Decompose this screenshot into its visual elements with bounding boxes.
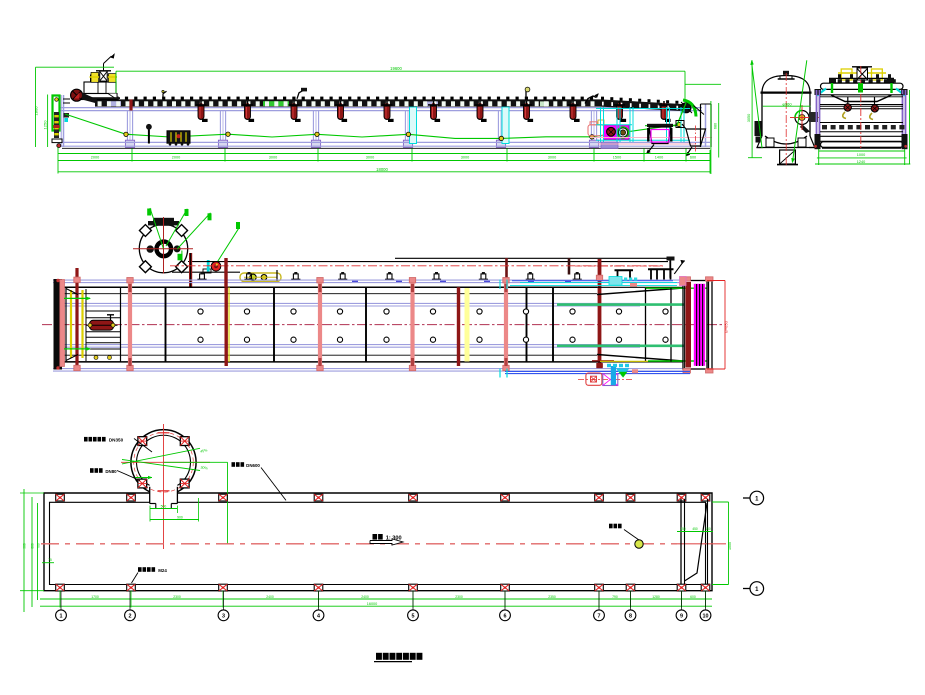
svg-text:φ960: φ960 xyxy=(782,102,792,107)
svg-text:600: 600 xyxy=(690,595,696,599)
svg-text:1800: 1800 xyxy=(34,106,39,116)
svg-text:9: 9 xyxy=(680,614,683,620)
svg-text:DN600: DN600 xyxy=(246,463,260,468)
svg-text:2300: 2300 xyxy=(455,595,463,599)
svg-text:1280: 1280 xyxy=(652,595,660,599)
svg-text:2000: 2000 xyxy=(91,155,99,159)
svg-text:3000: 3000 xyxy=(269,155,277,159)
svg-text:1500: 1500 xyxy=(613,155,621,159)
svg-text:4: 4 xyxy=(317,614,320,620)
svg-text:150: 150 xyxy=(680,527,686,531)
svg-text:10: 10 xyxy=(703,614,709,620)
svg-text:2300: 2300 xyxy=(173,595,181,599)
svg-text:700: 700 xyxy=(37,543,41,549)
svg-text:DN80: DN80 xyxy=(105,469,117,474)
svg-text:7: 7 xyxy=(598,614,601,620)
svg-text:1000: 1000 xyxy=(857,153,865,157)
svg-text:75: 75 xyxy=(48,558,52,562)
svg-text:2400: 2400 xyxy=(266,595,274,599)
svg-text:1240: 1240 xyxy=(857,160,865,164)
svg-text:2000: 2000 xyxy=(172,155,180,159)
svg-text:790: 790 xyxy=(612,595,618,599)
svg-text:B=650: B=650 xyxy=(724,320,729,332)
svg-text:DN350: DN350 xyxy=(109,438,124,443)
svg-text:1000: 1000 xyxy=(728,542,732,550)
svg-text:1400: 1400 xyxy=(655,155,663,159)
svg-text:5: 5 xyxy=(412,614,415,620)
svg-text:680: 680 xyxy=(714,123,718,129)
svg-text:150: 150 xyxy=(705,527,711,531)
svg-text:18000: 18000 xyxy=(376,167,388,172)
svg-text:6: 6 xyxy=(504,614,507,620)
svg-text:2400: 2400 xyxy=(361,595,369,599)
svg-text:500: 500 xyxy=(161,505,167,509)
svg-text:1: 1 xyxy=(60,614,63,620)
svg-text:3000: 3000 xyxy=(461,155,469,159)
svg-text:2: 2 xyxy=(129,614,132,620)
svg-text:8: 8 xyxy=(629,614,632,620)
svg-text:900: 900 xyxy=(177,515,183,519)
svg-text:2350: 2350 xyxy=(548,595,556,599)
svg-text:3: 3 xyxy=(222,614,225,620)
svg-text:450: 450 xyxy=(692,527,698,531)
svg-text:3050: 3050 xyxy=(747,114,751,122)
svg-text:1700: 1700 xyxy=(91,595,99,599)
svg-text:900: 900 xyxy=(23,543,27,549)
svg-text:16000: 16000 xyxy=(367,602,378,606)
svg-text:19600: 19600 xyxy=(390,66,402,71)
svg-text:1250: 1250 xyxy=(43,120,48,130)
svg-text:3000: 3000 xyxy=(548,155,556,159)
svg-text:600: 600 xyxy=(690,155,696,159)
svg-text:3000: 3000 xyxy=(366,155,374,159)
svg-text:M24: M24 xyxy=(158,568,167,573)
svg-text:800: 800 xyxy=(31,543,35,549)
